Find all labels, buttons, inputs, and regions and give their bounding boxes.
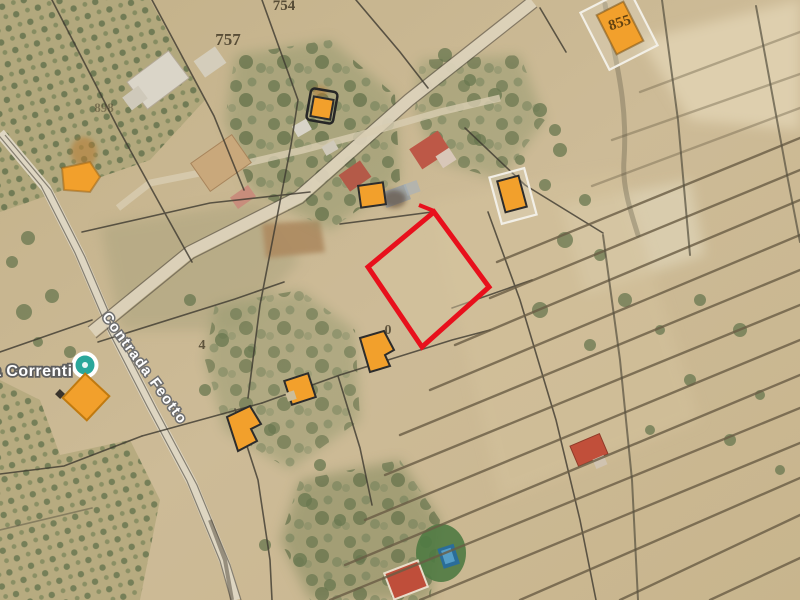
parcel-number: 898 — [94, 100, 114, 115]
parcel-number: 0 — [385, 323, 392, 338]
parcel-number: 4 — [199, 338, 206, 353]
building-footprint — [310, 96, 333, 119]
map-canvas: 75475785589840 a CorrentiContrada Feotto — [0, 0, 800, 600]
parcel-number: 754 — [273, 0, 296, 14]
building-footprint — [358, 182, 386, 207]
satellite-map[interactable]: 75475785589840 a CorrentiContrada Feotto — [0, 0, 800, 600]
poi-icon-dot — [82, 362, 88, 368]
map-label: a Correnti — [0, 363, 73, 380]
highlighted-building — [358, 182, 386, 207]
parcel-number: 757 — [215, 30, 241, 49]
